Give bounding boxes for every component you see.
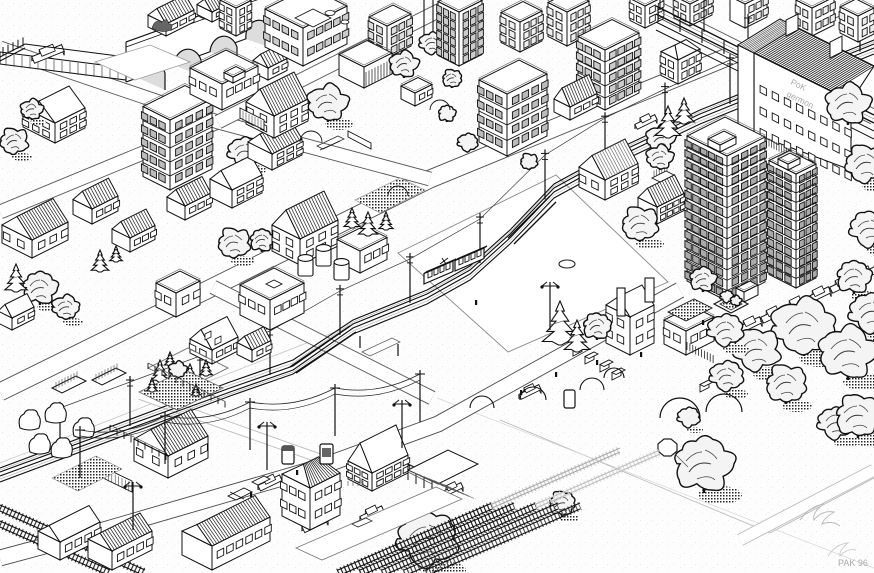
svg-text:PAK 96: PAK 96 [838,558,868,568]
